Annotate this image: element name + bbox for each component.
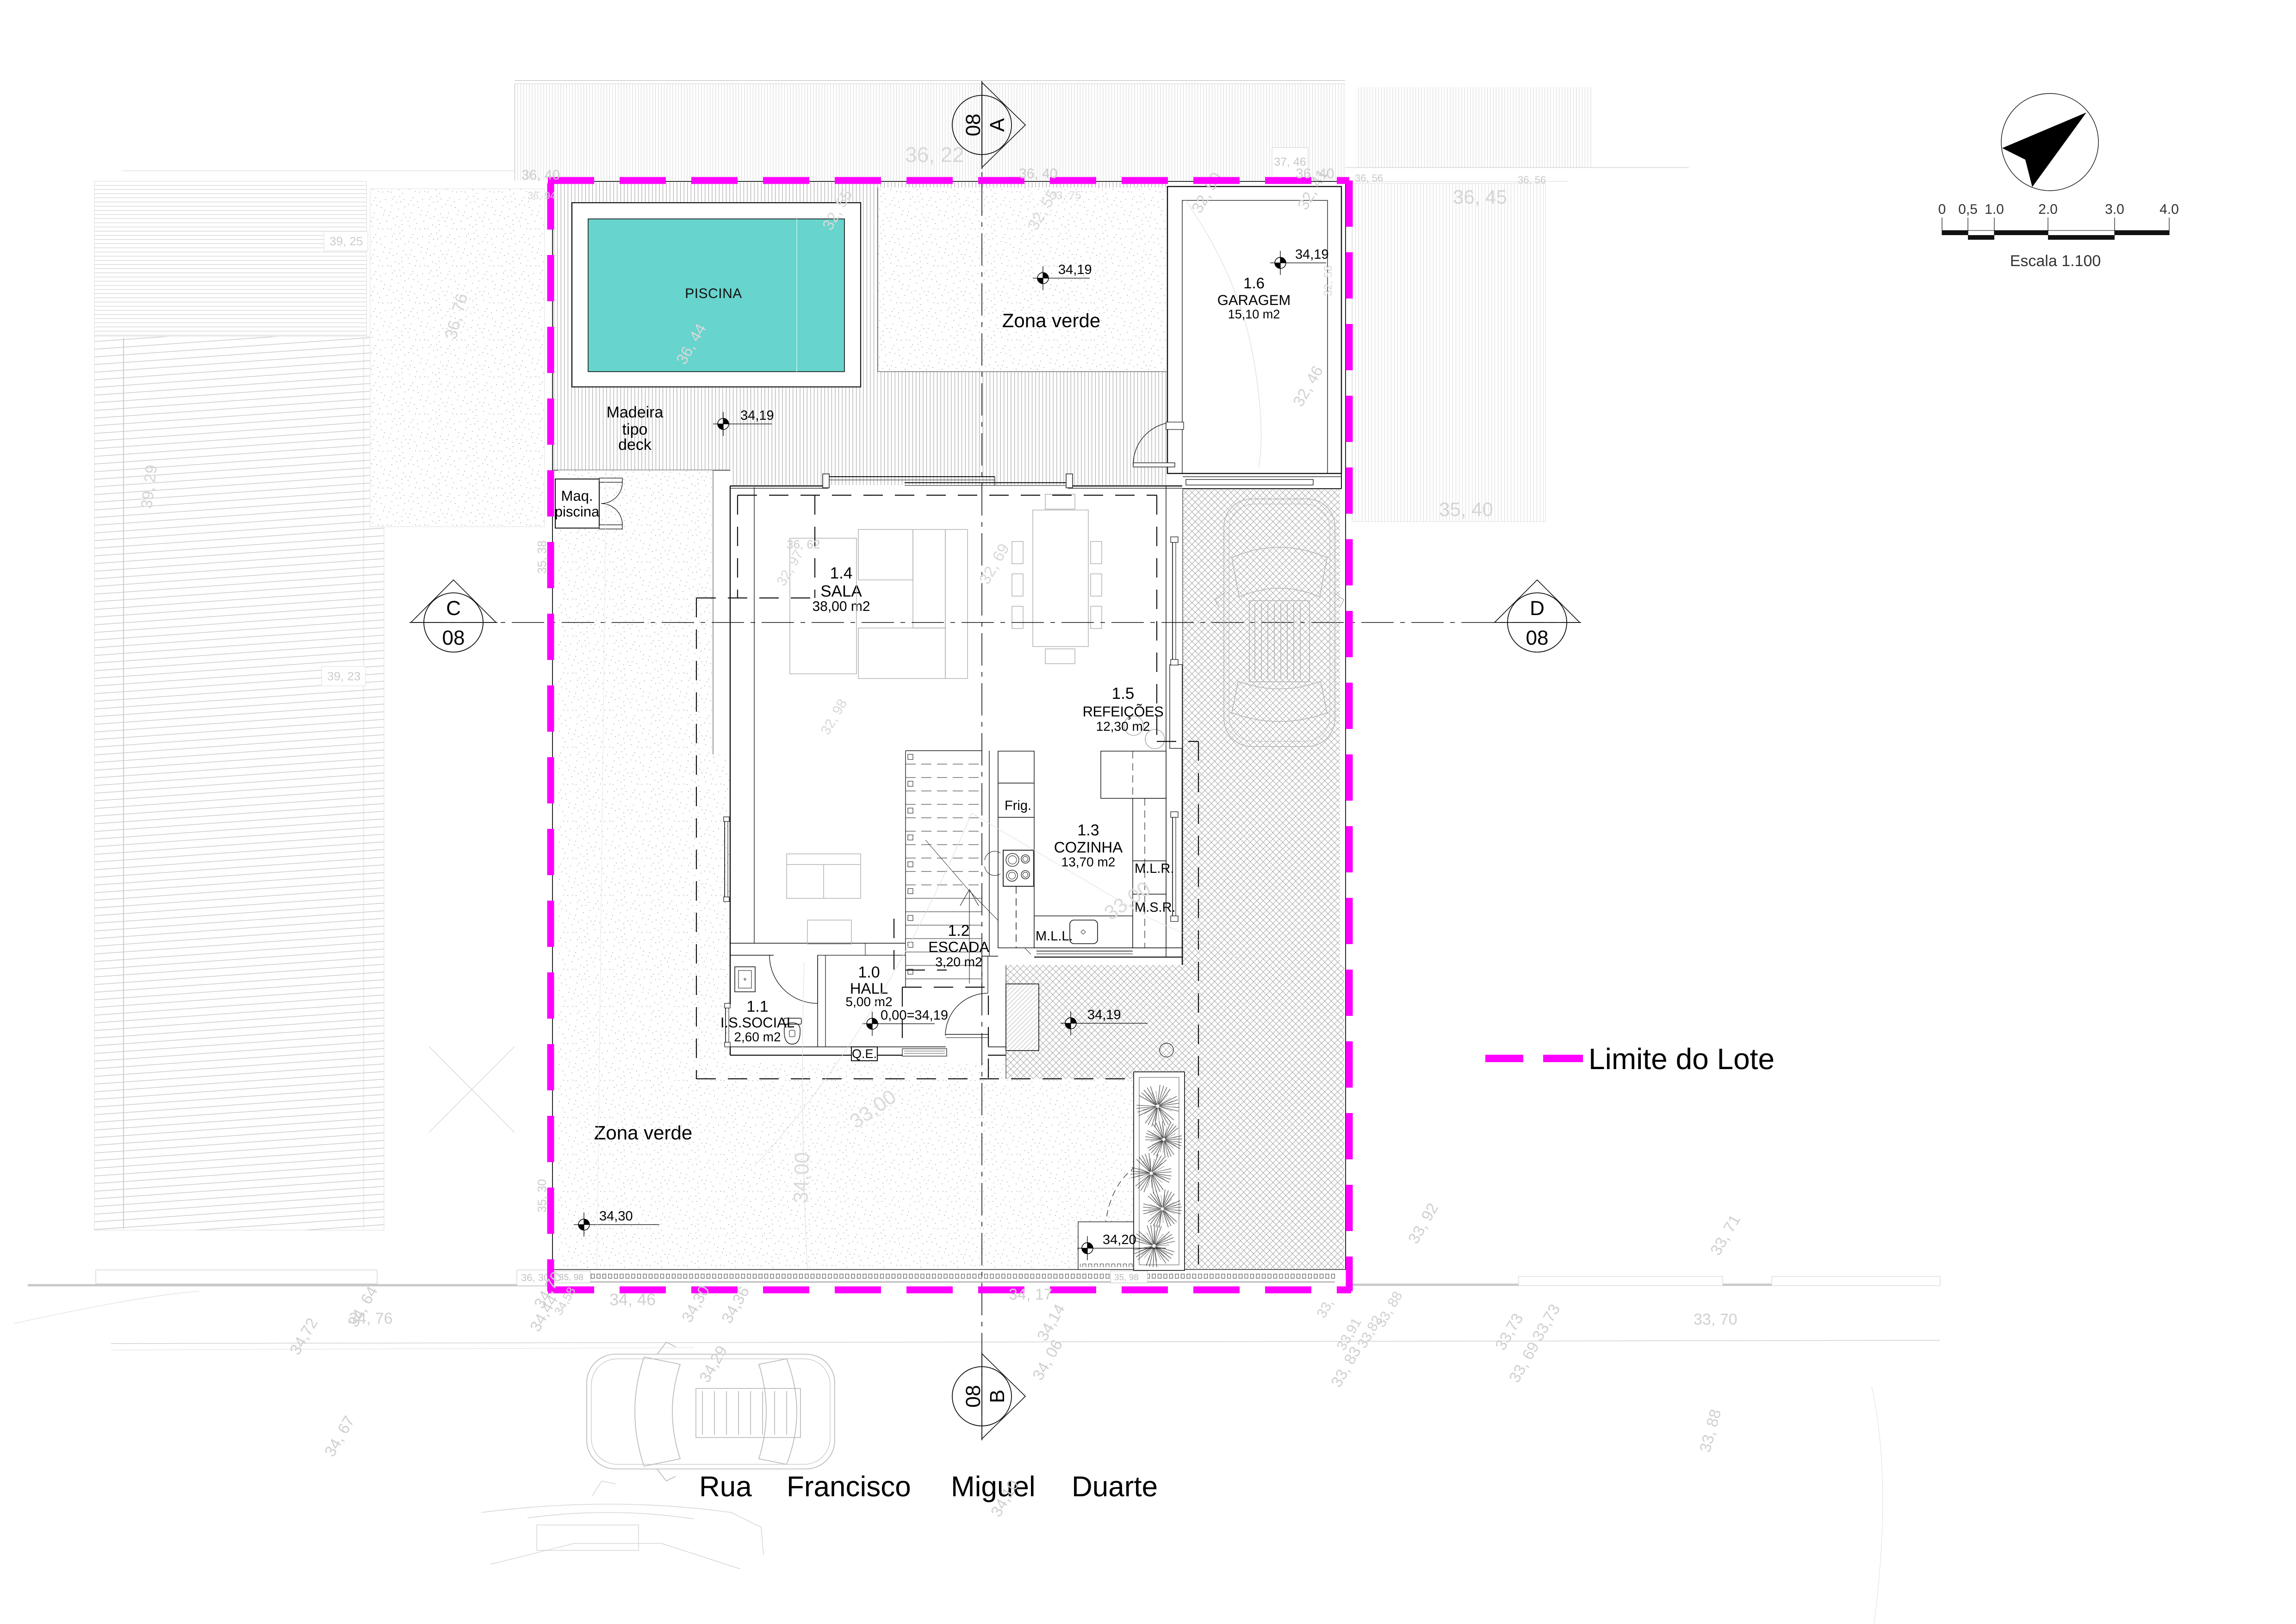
- svg-text:1.6: 1.6: [1243, 274, 1265, 292]
- svg-text:piscina: piscina: [555, 504, 600, 520]
- svg-text:33, 70: 33, 70: [1694, 1311, 1738, 1328]
- svg-text:Francisco: Francisco: [787, 1471, 911, 1503]
- svg-text:Duarte: Duarte: [1072, 1471, 1158, 1503]
- svg-text:GARAGEM: GARAGEM: [1217, 292, 1291, 308]
- svg-text:0: 0: [1938, 202, 1946, 217]
- svg-text:35, 40: 35, 40: [1439, 498, 1493, 520]
- svg-text:Frig.: Frig.: [1005, 798, 1031, 813]
- svg-text:38,00 m2: 38,00 m2: [812, 599, 870, 614]
- svg-text:deck: deck: [618, 436, 652, 454]
- svg-text:3.0: 3.0: [2105, 202, 2124, 217]
- svg-text:Zona verde: Zona verde: [594, 1122, 692, 1144]
- svg-text:36, 22: 36, 22: [905, 143, 964, 167]
- svg-text:COZINHA: COZINHA: [1054, 839, 1123, 856]
- svg-text:SALA: SALA: [820, 582, 862, 600]
- svg-text:08: 08: [962, 114, 985, 137]
- svg-text:Zona verde: Zona verde: [1002, 310, 1100, 331]
- svg-text:13,70 m2: 13,70 m2: [1061, 855, 1116, 869]
- svg-text:4.0: 4.0: [2159, 202, 2179, 217]
- svg-text:PISCINA: PISCINA: [685, 286, 742, 301]
- svg-text:0,5: 0,5: [1958, 202, 1978, 217]
- svg-text:08: 08: [962, 1385, 985, 1408]
- svg-text:1.2: 1.2: [948, 922, 969, 940]
- svg-text:15,10 m2: 15,10 m2: [1228, 307, 1280, 321]
- svg-text:3,20 m2: 3,20 m2: [935, 955, 982, 969]
- svg-text:36, 56: 36, 56: [1355, 172, 1383, 184]
- svg-text:35, 30: 35, 30: [535, 1179, 549, 1213]
- svg-text:1.0: 1.0: [1985, 202, 2004, 217]
- svg-text:Miguel: Miguel: [951, 1471, 1036, 1503]
- svg-text:36, 40: 36, 40: [1296, 166, 1334, 181]
- svg-text:08: 08: [1526, 627, 1549, 649]
- svg-text:1.0: 1.0: [858, 964, 880, 981]
- svg-text:34,00: 34,00: [789, 1152, 814, 1204]
- svg-text:Escala 1.100: Escala 1.100: [2010, 252, 2101, 270]
- svg-text:Maq.: Maq.: [561, 488, 593, 504]
- svg-text:5,00 m2: 5,00 m2: [845, 995, 892, 1009]
- svg-text:Madeira: Madeira: [607, 404, 664, 421]
- svg-text:REFEIÇÕES: REFEIÇÕES: [1083, 703, 1164, 720]
- svg-text:B: B: [986, 1389, 1009, 1403]
- svg-text:34,20: 34,20: [1103, 1232, 1136, 1247]
- svg-text:M.L.R.: M.L.R.: [1135, 861, 1174, 876]
- svg-text:34, 17: 34, 17: [1009, 1286, 1053, 1303]
- svg-text:I.S.SOCIAL: I.S.SOCIAL: [720, 1014, 794, 1031]
- svg-text:0,00=34,19: 0,00=34,19: [881, 1008, 948, 1023]
- svg-text:36, 40: 36, 40: [1019, 166, 1057, 181]
- svg-text:ESCADA: ESCADA: [928, 939, 989, 955]
- svg-text:D: D: [1530, 597, 1545, 620]
- svg-text:32, 58: 32, 58: [1322, 265, 1334, 296]
- svg-text:34,30: 34,30: [599, 1209, 633, 1224]
- svg-text:39, 25: 39, 25: [329, 234, 363, 248]
- svg-text:1.5: 1.5: [1112, 684, 1135, 703]
- svg-text:A: A: [986, 118, 1009, 132]
- svg-text:36, 94: 36, 94: [527, 190, 556, 201]
- svg-text:2,60 m2: 2,60 m2: [734, 1030, 781, 1044]
- svg-text:M.L.L.: M.L.L.: [1036, 929, 1073, 944]
- svg-text:C: C: [446, 597, 461, 620]
- svg-text:Rua: Rua: [699, 1471, 752, 1503]
- svg-text:39, 23: 39, 23: [327, 669, 360, 683]
- svg-text:1.4: 1.4: [830, 564, 853, 582]
- svg-text:36, 45: 36, 45: [1453, 186, 1507, 208]
- svg-text:34, 76: 34, 76: [349, 1310, 393, 1327]
- svg-text:Q.E.: Q.E.: [852, 1047, 877, 1061]
- svg-text:34, 46: 34, 46: [609, 1290, 656, 1309]
- svg-text:08: 08: [442, 627, 465, 649]
- svg-text:2.0: 2.0: [2038, 202, 2058, 217]
- svg-text:1.3: 1.3: [1077, 821, 1099, 839]
- svg-text:34,19: 34,19: [1058, 262, 1092, 277]
- svg-text:34,19: 34,19: [1087, 1008, 1121, 1022]
- svg-text:Limite do Lote: Limite do Lote: [1589, 1042, 1775, 1076]
- svg-text:1.1: 1.1: [746, 998, 768, 1015]
- svg-text:36, 40: 36, 40: [521, 168, 560, 183]
- svg-text:35, 38: 35, 38: [535, 541, 549, 574]
- svg-text:36, 62: 36, 62: [787, 537, 820, 551]
- svg-text:34,19: 34,19: [1295, 247, 1329, 262]
- svg-text:12,30 m2: 12,30 m2: [1096, 719, 1150, 734]
- svg-text:34,19: 34,19: [740, 408, 774, 423]
- svg-text:35, 98: 35, 98: [1114, 1273, 1139, 1282]
- svg-text:36, 56: 36, 56: [1518, 174, 1546, 186]
